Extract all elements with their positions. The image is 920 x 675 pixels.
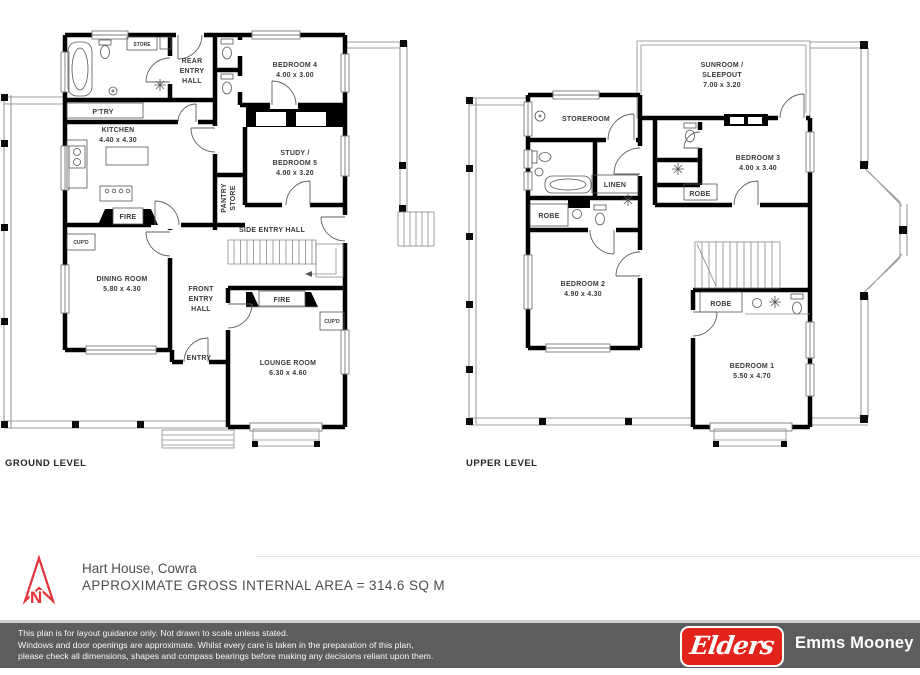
shower-icon — [672, 163, 684, 175]
room-label-bedroom2: BEDROOM 2 — [561, 281, 606, 288]
north-letter: N — [30, 588, 42, 605]
label-fire-lounge: FIRE — [274, 297, 291, 304]
room-dims-dining: 5.80 x 4.30 — [103, 286, 141, 293]
room-label-sunroom-1: SUNROOM / — [701, 62, 744, 69]
label-fire-kitchen: FIRE — [120, 214, 137, 221]
room-label-linen: LINEN — [604, 182, 626, 189]
label-cupd-dining: CUP'D — [73, 240, 89, 246]
property-name: Hart House, Cowra — [82, 560, 445, 577]
room-label-lounge: LOUNGE ROOM — [260, 360, 316, 367]
room-label-front-entry-3: HALL — [191, 306, 211, 313]
room-label-store: STORE — [133, 42, 151, 48]
elders-logo-text: Elders — [688, 631, 776, 663]
room-label-pantry-store-2: STORE — [230, 185, 237, 210]
floorplan-page: STORE REAR ENTRY HALL BEDROOM 4 4.00 x 3… — [0, 0, 920, 675]
room-label-rear-entry-1: REAR — [182, 58, 203, 65]
room-label-pantry: P'TRY — [92, 109, 113, 116]
disclaimer-line-1: This plan is for layout guidance only. N… — [18, 628, 433, 640]
shower-icon — [769, 296, 781, 308]
room-label-storeroom: STOREROOM — [562, 116, 610, 123]
room-dims-bedroom4: 4.00 x 3.00 — [276, 72, 314, 79]
room-label-robe-bedroom1: ROBE — [710, 301, 731, 308]
ground-staircase — [228, 240, 343, 277]
upper-staircase — [695, 242, 780, 288]
room-label-kitchen: KITCHEN — [102, 127, 135, 134]
room-label-front-entry-2: ENTRY — [189, 296, 214, 303]
room-label-pantry-store-1: PANTRY — [221, 183, 228, 213]
lounge-bay-window — [252, 429, 320, 447]
room-label-sunroom-2: SLEEPOUT — [702, 72, 742, 79]
elders-logo: Elders — [680, 626, 784, 667]
room-dims-bedroom3: 4.00 x 3.40 — [739, 165, 777, 172]
ground-level-plan: STORE REAR ENTRY HALL BEDROOM 4 4.00 x 3… — [1, 31, 434, 469]
disclaimer-line-2: Windows and door openings are approximat… — [18, 640, 433, 652]
bedroom1-bay-window — [713, 429, 787, 447]
plan-footer: Hart House, Cowra APPROXIMATE GROSS INTE… — [82, 560, 445, 594]
room-dims-bedroom1: 5.50 x 4.70 — [733, 373, 771, 380]
upper-level-plan: SUNROOM / SLEEPOUT 7.00 x 3.20 STOREROOM… — [466, 41, 907, 469]
room-dims-bedroom2: 4.90 x 4.30 — [564, 291, 602, 298]
label-cupd-lounge: CUP'D — [324, 319, 340, 325]
room-label-side-entry-hall: SIDE ENTRY HALL — [239, 227, 305, 234]
room-label-rear-entry-2: ENTRY — [180, 68, 205, 75]
room-label-bedroom1: BEDROOM 1 — [730, 363, 775, 370]
agency-name: Emms Mooney — [795, 634, 914, 653]
disclaimer-line-3: please check all dimensions, shapes and … — [18, 651, 433, 663]
north-arrow-icon: N — [18, 555, 60, 605]
room-dims-study: 4.00 x 3.20 — [276, 170, 314, 177]
footer-divider — [255, 556, 920, 557]
room-label-robe-bath: ROBE — [538, 213, 559, 220]
upper-level-title: UPPER LEVEL — [466, 458, 538, 469]
room-label-study-2: BEDROOM 5 — [273, 160, 318, 167]
room-label-study-1: STUDY / — [280, 150, 309, 157]
ground-level-title: GROUND LEVEL — [5, 458, 86, 469]
room-dims-kitchen: 4.40 x 4.30 — [99, 137, 137, 144]
ground-entry-steps — [162, 212, 434, 448]
room-dims-lounge: 6.30 x 4.60 — [269, 370, 307, 377]
room-label-front-entry-1: FRONT — [188, 286, 214, 293]
ground-door-gaps — [151, 31, 349, 366]
disclaimer-text: This plan is for layout guidance only. N… — [18, 628, 433, 663]
room-dims-sunroom: 7.00 x 3.20 — [703, 82, 741, 89]
disclaimer-bar: This plan is for layout guidance only. N… — [0, 623, 920, 668]
ground-builtin-robes — [246, 107, 344, 127]
room-label-bedroom3: BEDROOM 3 — [736, 155, 781, 162]
floor-plans: STORE REAR ENTRY HALL BEDROOM 4 4.00 x 3… — [0, 0, 920, 540]
floor-area-note: APPROXIMATE GROSS INTERNAL AREA = 314.6 … — [82, 577, 445, 594]
room-label-robe-bedroom3: ROBE — [689, 191, 710, 198]
shower-icon — [154, 79, 166, 91]
room-label-bedroom4: BEDROOM 4 — [273, 62, 318, 69]
label-entry: ENTRY — [187, 355, 212, 362]
room-label-dining: DINING ROOM — [97, 276, 148, 283]
sunroom-glazing — [637, 41, 810, 118]
room-label-rear-entry-3: HALL — [182, 78, 202, 85]
